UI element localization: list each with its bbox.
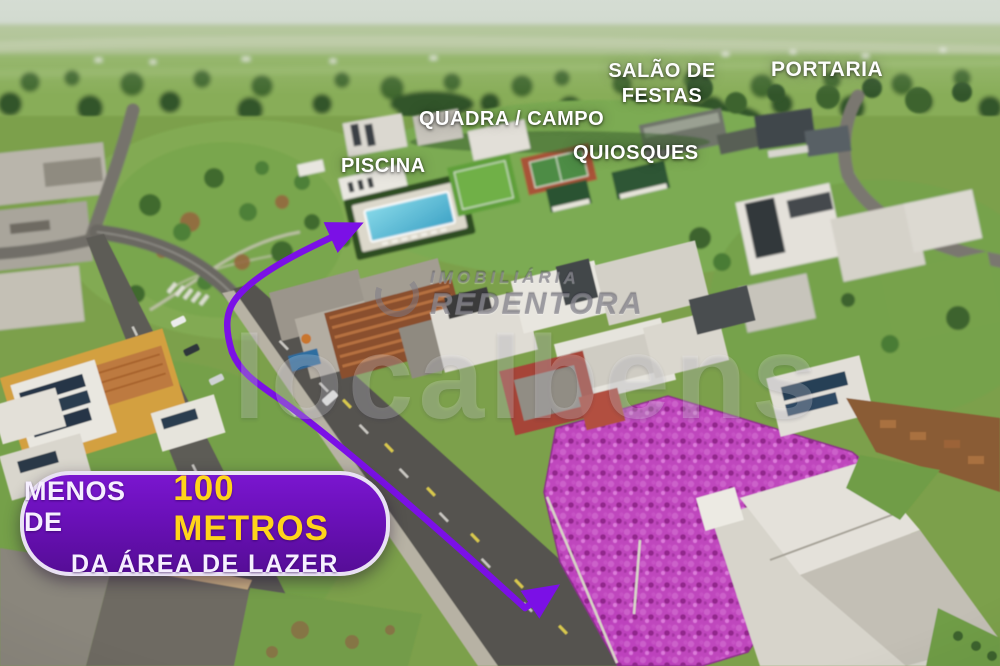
label-party-hall: SALÃO DE FESTAS [590,59,734,109]
badge-highlight: 100 METROS [173,469,386,549]
aerial-photo: IMOBILIÁRIA REDENTORA localbens SALÃO DE… [0,0,1000,666]
label-gatehouse: PORTARIA [771,58,883,82]
badge-prefix: MENOS DE [24,476,162,538]
badge-line1: MENOS DE 100 METROS [24,469,386,549]
label-kiosks: QUIOSQUES [573,142,699,165]
badge-line2: DA ÁREA DE LAZER [71,550,339,579]
label-pool: PISCINA [341,155,426,178]
label-sports-court: QUADRA / CAMPO [419,108,604,131]
distance-badge: MENOS DE 100 METROS DA ÁREA DE LAZER [20,471,390,576]
